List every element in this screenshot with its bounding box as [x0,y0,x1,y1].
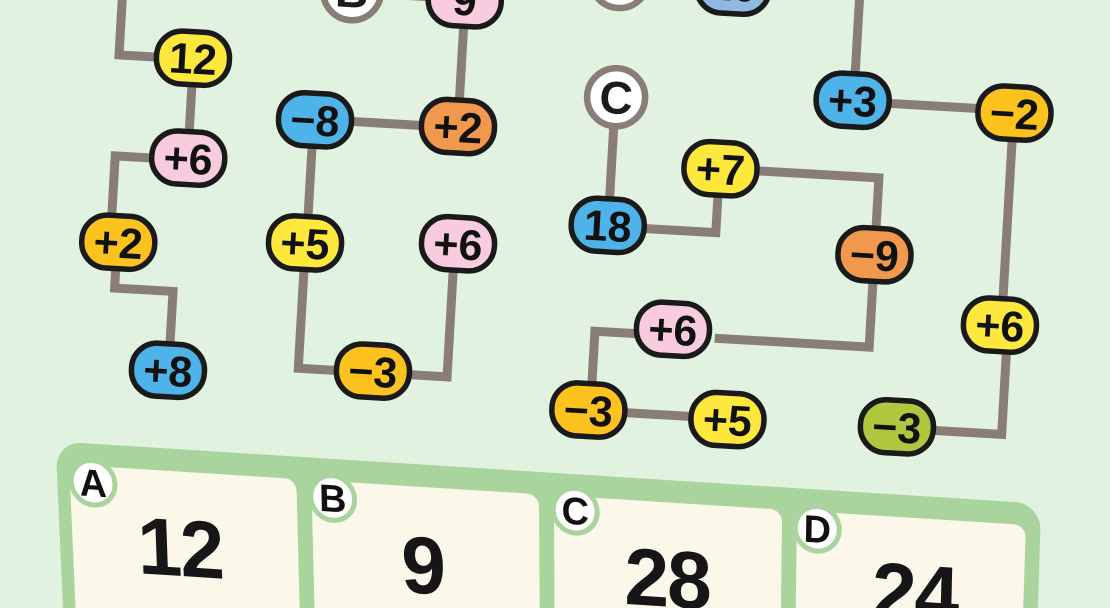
svg-text:B: B [334,0,370,18]
svg-text:+6: +6 [647,305,699,356]
svg-text:+6: +6 [432,220,484,271]
svg-text:+2: +2 [92,218,144,269]
svg-text:−3: −3 [562,386,614,437]
svg-text:+3: +3 [827,76,879,127]
svg-text:−2: −2 [989,89,1041,140]
svg-text:D: D [803,507,831,552]
svg-text:9: 9 [451,0,478,26]
svg-text:−8: −8 [289,96,341,147]
svg-text:+6: +6 [162,134,214,185]
svg-text:C: C [561,489,589,534]
svg-text:+5: +5 [279,219,331,270]
svg-text:+2: +2 [432,103,484,154]
svg-text:+7: +7 [695,145,747,196]
svg-text:18: 18 [582,202,633,253]
svg-text:+6: +6 [974,301,1026,352]
svg-text:C: C [598,71,634,125]
svg-text:9: 9 [401,520,445,608]
svg-text:−3: −3 [347,347,399,398]
svg-text:B: B [319,477,347,522]
svg-text:12: 12 [136,501,224,597]
svg-text:+8: +8 [142,346,194,397]
svg-text:A: A [79,461,108,506]
svg-text:28: 28 [624,532,710,608]
svg-text:24: 24 [871,546,961,608]
svg-text:−3: −3 [871,403,923,454]
svg-text:−9: −9 [849,231,901,282]
svg-text:12: 12 [168,34,219,85]
svg-text:+5: +5 [702,396,754,447]
